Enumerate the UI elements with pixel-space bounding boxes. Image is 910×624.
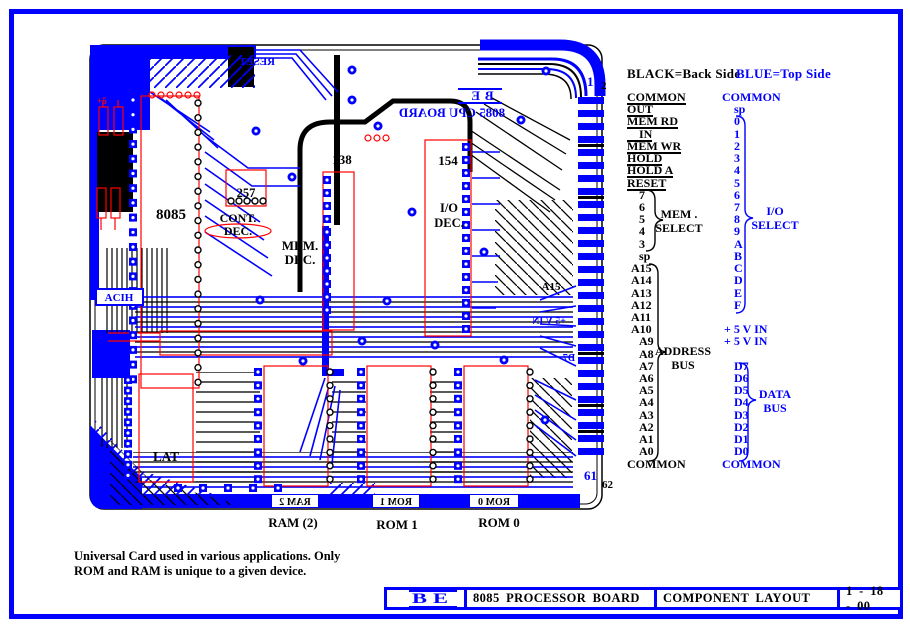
pin-row: A13 [627, 287, 719, 299]
title-sheet-name: COMPONENT LAYOUT [657, 590, 840, 607]
silk-board-name: 8085 CPU BOARD [399, 105, 505, 120]
silk-rom1-text: ROM 1 [380, 497, 412, 508]
silk-plus5vin: +5 V IN [531, 316, 565, 327]
be-logo: BE [409, 590, 457, 608]
mem-select-group: MEM . SELECT [650, 207, 708, 235]
data-bus-group: DATA BUS [752, 387, 798, 415]
pin-row: F [722, 299, 840, 311]
mem-select-line2: SELECT [650, 221, 708, 235]
cont-dec-label-2: DEC. [224, 224, 252, 238]
pin-number-2: 2 [601, 80, 607, 92]
legend-black: BLACK=Back Side [627, 66, 740, 82]
pin-number-62: 62 [602, 479, 613, 491]
note: Universal Card used in various applicati… [74, 549, 340, 578]
silk-reset: RESET [238, 56, 275, 68]
io-select-line1: I/O [748, 204, 802, 218]
io-dec-label-1: I/O [440, 201, 458, 215]
pin-row: A14 [627, 274, 719, 286]
title-board-name: 8085 PROCESSOR BOARD [467, 590, 657, 607]
pin-row: D0 [722, 445, 840, 457]
label-rom0: ROM 0 [478, 515, 520, 530]
address-bus-group: ADDRESS BUS [652, 344, 714, 372]
io-dec-label-2: DEC. [434, 216, 464, 230]
pin-row: 0 [722, 115, 840, 127]
title-logo-cell: BE [387, 590, 467, 607]
cont-dec-label-1: CONT. [220, 211, 257, 225]
silk-a15: A15 [542, 281, 561, 293]
pin-number-1: 1 [587, 74, 594, 90]
pin-row: D [722, 274, 840, 286]
data-bus-line2: BUS [752, 401, 798, 415]
pin-row: A4 [627, 396, 719, 408]
mem-select-line1: MEM . [650, 207, 708, 221]
chip-label-8085: 8085 [156, 207, 186, 223]
address-bus-line2: BUS [652, 358, 714, 372]
pin-row: HOLD A [627, 164, 719, 176]
pin-number-61: 61 [584, 468, 597, 484]
back-side-pin-column: COMMONOUTMEM RDINMEM WRHOLDHOLD ARESET76… [627, 91, 719, 470]
io-select-group: I/O SELECT [748, 204, 802, 232]
title-block: BE 8085 PROCESSOR BOARD COMPONENT LAYOUT… [384, 587, 903, 610]
bottom-labels: RAM (2) ROM 1 ROM 0 [268, 515, 520, 532]
title-date: 1 - 18 - 00 [840, 590, 900, 607]
pin-row: RESET [627, 177, 719, 189]
svg-text:BE: BE [466, 88, 493, 103]
silk-ram-text: RAM 2 [279, 497, 310, 508]
label-rom1: ROM 1 [376, 517, 418, 532]
pin-row: COMMON [722, 458, 840, 470]
pin-row: E [722, 287, 840, 299]
io-select-line2: SELECT [748, 218, 802, 232]
mem-dec-label-1: MEM. [282, 238, 318, 253]
data-bus-line1: DATA [752, 387, 798, 401]
pin-row: 3 [627, 238, 719, 250]
silk-rom0-text: ROM 0 [478, 497, 510, 508]
chip-label-lat: LAT [153, 449, 179, 464]
pin-row: A0 [627, 445, 719, 457]
silk-plus5: +5 [97, 96, 107, 106]
page: 8085 LAT 257 138 154 I/O DEC. MEM. DEC. … [0, 0, 910, 624]
silk-d7: D7 [563, 353, 575, 364]
silk-left-box-text: ACIH [105, 292, 134, 304]
pin-row [722, 348, 840, 360]
legend-blue: BLUE=Top Side [736, 66, 831, 82]
mem-dec-label-2: DEC. [285, 252, 316, 267]
chip-label-154: 154 [438, 153, 458, 168]
chip-label-138: 138 [332, 152, 352, 167]
pin-row: MEM RD [627, 115, 719, 127]
pin-row: 5 [722, 177, 840, 189]
pin-row: A [722, 238, 840, 250]
pin-row: + 5 V IN [722, 335, 840, 347]
chip-label-257: 257 [237, 186, 256, 200]
label-ram2: RAM (2) [268, 515, 317, 530]
pin-row: COMMON [627, 458, 719, 470]
note-line2: ROM and RAM is unique to a given device. [74, 564, 340, 579]
pin-row: 4 [722, 164, 840, 176]
note-line1: Universal Card used in various applicati… [74, 549, 340, 564]
address-bus-line1: ADDRESS [652, 344, 714, 358]
